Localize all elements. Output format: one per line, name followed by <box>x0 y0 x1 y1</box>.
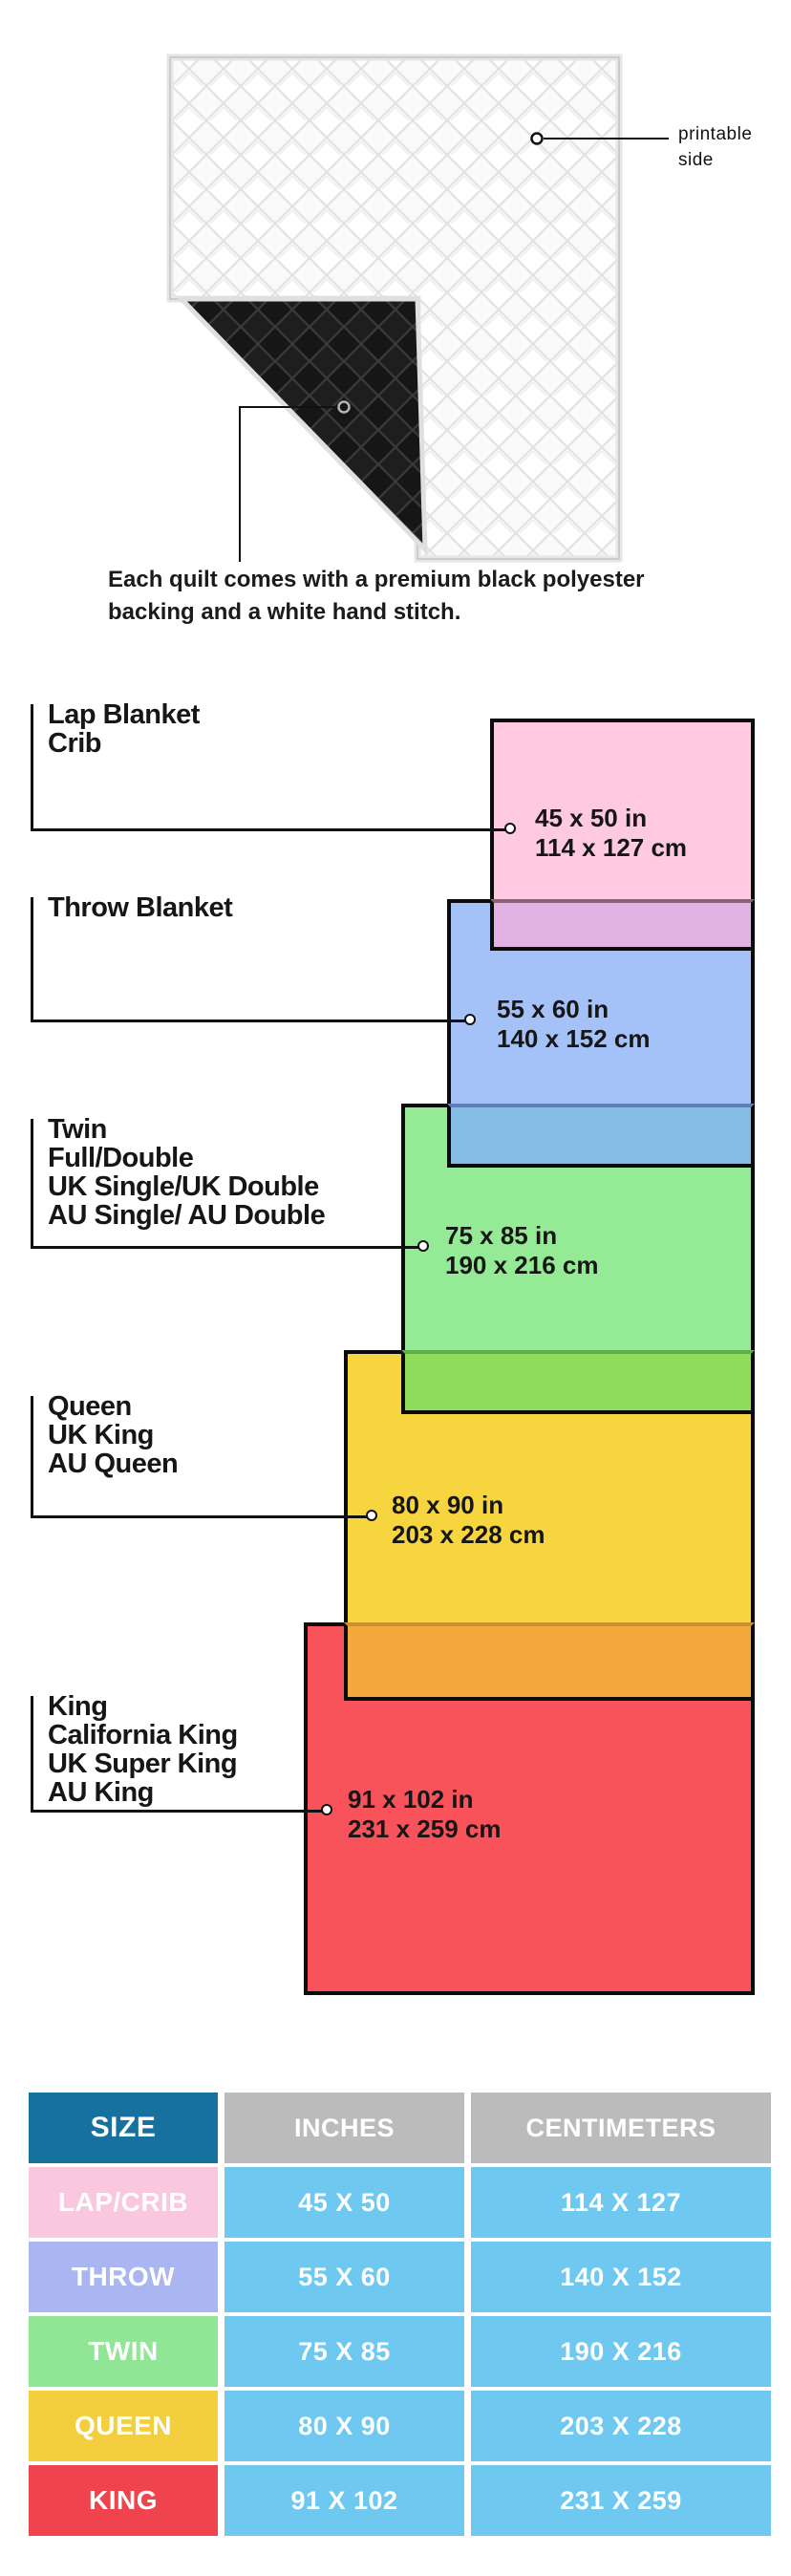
table-row-lap-inches: 45 X 50 <box>224 2167 464 2238</box>
printable-side-marker <box>532 134 543 144</box>
leader-dot-queen <box>366 1510 377 1521</box>
overlap-lap-throw <box>490 899 755 951</box>
leader-hline-king <box>31 1810 322 1813</box>
table-row-lap-cm: 114 X 127 <box>471 2167 771 2238</box>
leader-dot-twin <box>417 1240 429 1252</box>
leader-dot-king <box>321 1804 332 1815</box>
table-row-twin-size: TWIN <box>29 2316 218 2387</box>
table-row-throw-inches: 55 X 60 <box>224 2242 464 2312</box>
size-label-twin: Twin Full/Double UK Single/UK Double AU … <box>48 1115 325 1230</box>
size-table: SIZE INCHES CENTIMETERS LAP/CRIB 45 X 50… <box>29 2093 771 2536</box>
table-row-queen-cm: 203 X 228 <box>471 2391 771 2461</box>
table-row-king-size: KING <box>29 2465 218 2536</box>
table-header-inches: INCHES <box>224 2093 464 2163</box>
quilt-size-infographic: printable side Each quilt comes with a p… <box>0 0 791 2576</box>
quilt-black-backing-flap <box>182 299 425 549</box>
size-label-king: King California King UK Super King AU Ki… <box>48 1692 238 1807</box>
leader-hline-lap <box>31 828 505 831</box>
table-row-king-cm: 231 X 259 <box>471 2465 771 2536</box>
leader-vline-lap <box>31 704 33 831</box>
overlap-throw-twin <box>447 1104 755 1168</box>
table-row-king-inches: 91 X 102 <box>224 2465 464 2536</box>
dimensions-throw: 55 x 60 in 140 x 152 cm <box>497 995 650 1054</box>
leader-dot-throw <box>464 1014 476 1025</box>
table-row-twin-cm: 190 X 216 <box>471 2316 771 2387</box>
dimensions-king: 91 x 102 in 231 x 259 cm <box>348 1785 501 1844</box>
leader-vline-king <box>31 1696 33 1813</box>
leader-vline-throw <box>31 897 33 1022</box>
table-row-queen-size: QUEEN <box>29 2391 218 2461</box>
table-header-size: SIZE <box>29 2093 218 2163</box>
overlap-queen-king <box>344 1622 755 1701</box>
table-row-throw-cm: 140 X 152 <box>471 2242 771 2312</box>
table-row-lap-size: LAP/CRIB <box>29 2167 218 2238</box>
table-header-centimeters: CENTIMETERS <box>471 2093 771 2163</box>
leader-dot-lap <box>504 823 516 834</box>
caption-line-2: backing and a white hand stitch. <box>108 596 738 629</box>
leader-hline-throw <box>31 1020 465 1022</box>
printable-side-label: printable side <box>678 121 785 173</box>
table-row-throw-size: THROW <box>29 2242 218 2312</box>
table-row-queen-inches: 80 X 90 <box>224 2391 464 2461</box>
overlap-twin-queen <box>401 1350 755 1414</box>
caption-line-1: Each quilt comes with a premium black po… <box>108 564 738 596</box>
dimensions-twin: 75 x 85 in 190 x 216 cm <box>445 1221 598 1280</box>
leader-vline-twin <box>31 1119 33 1249</box>
quilt-caption: Each quilt comes with a premium black po… <box>108 564 738 629</box>
table-row-twin-inches: 75 X 85 <box>224 2316 464 2387</box>
dimensions-lap-crib: 45 x 50 in 114 x 127 cm <box>535 804 687 863</box>
size-label-throw: Throw Blanket <box>48 893 232 922</box>
size-label-lap-crib: Lap Blanket Crib <box>48 700 200 758</box>
size-label-queen: Queen UK King AU Queen <box>48 1392 178 1478</box>
leader-hline-twin <box>31 1246 418 1249</box>
dimensions-queen: 80 x 90 in 203 x 228 cm <box>392 1491 545 1550</box>
leader-hline-queen <box>31 1515 367 1518</box>
leader-vline-queen <box>31 1396 33 1518</box>
